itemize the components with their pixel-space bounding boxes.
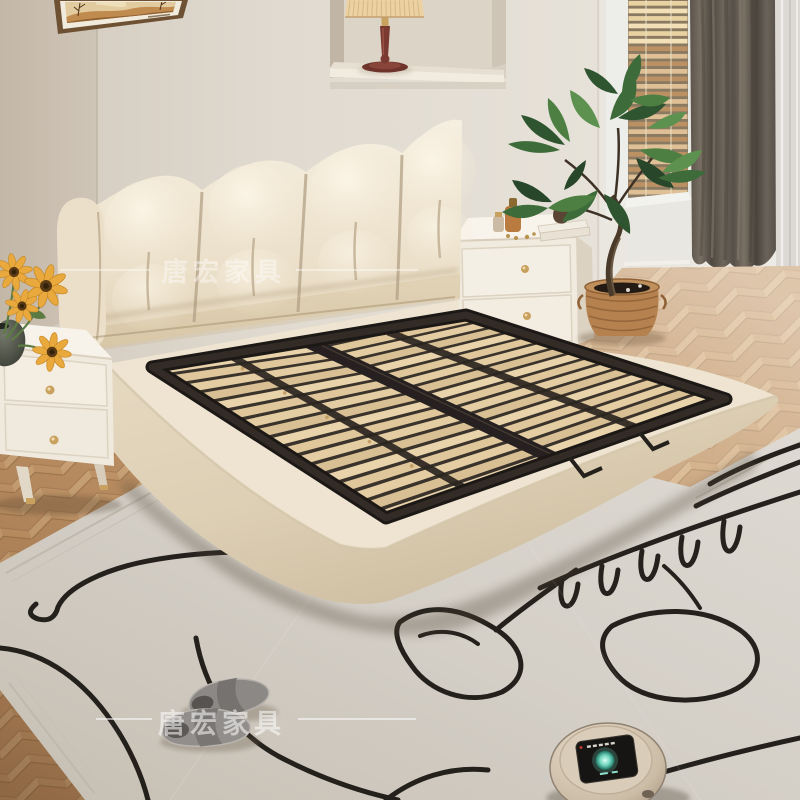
slat-knot	[368, 440, 372, 444]
plant-basket	[578, 279, 665, 336]
blind-slat	[629, 16, 688, 21]
curtain	[690, 0, 777, 269]
vacuum-button	[642, 790, 654, 798]
scene-canvas: 唐宏家具 唐宏家具	[0, 0, 800, 800]
blind-slat	[629, 46, 688, 51]
blind-slat	[629, 137, 688, 142]
drawer-bottom	[5, 404, 108, 458]
blind-slat	[629, 1, 688, 6]
drawer-knob	[523, 312, 531, 320]
slat-knot	[325, 415, 329, 419]
watermark-text: 唐宏家具	[158, 708, 286, 739]
blind-slat	[629, 39, 688, 44]
blind-slat	[629, 144, 688, 149]
blind-slat	[629, 9, 688, 14]
blind-slat	[629, 31, 688, 36]
drawer-knob	[521, 265, 529, 273]
lamp-pleat	[395, 1, 396, 17]
lamp-pleat	[372, 1, 373, 17]
blind-slat	[629, 24, 688, 29]
blind-slat	[629, 84, 688, 89]
watermark-text: 唐宏家具	[162, 257, 286, 287]
slat-knot	[410, 464, 414, 468]
sheer-curtain	[775, 0, 800, 272]
bedroom-photo: 唐宏家具 唐宏家具	[0, 0, 800, 800]
drawer-top	[462, 245, 571, 297]
blind-slat	[629, 129, 688, 134]
lamp-shade	[345, 0, 424, 17]
baseboard	[624, 262, 690, 264]
slat-knot	[283, 391, 287, 395]
